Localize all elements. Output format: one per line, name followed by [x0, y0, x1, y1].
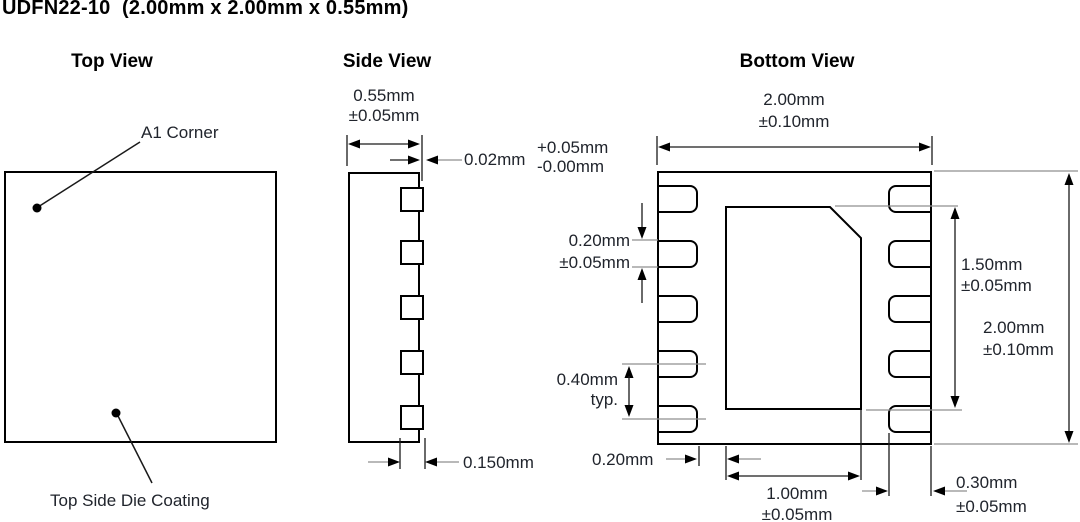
dim-terminal-thickness: 0.150mm	[463, 453, 534, 473]
arrowhead-down-icon	[951, 396, 960, 408]
arrowhead-up-icon	[638, 268, 647, 280]
arrowhead-down-icon	[1065, 431, 1074, 443]
arrowhead-up-icon	[1065, 173, 1074, 185]
arrowhead-left-icon	[348, 140, 360, 149]
arrowhead-right-icon	[685, 455, 697, 464]
dim-terminal-width: 0.20mm ±0.05mm	[538, 230, 630, 274]
arrowhead-right-icon	[919, 143, 931, 152]
arrowhead-left-icon	[727, 455, 739, 464]
a1-corner-label: A1 Corner	[141, 123, 218, 143]
arrowhead-down-icon	[638, 227, 647, 239]
dim-terminal-length: 0.30mm ±0.05mm	[956, 471, 1027, 519]
leader-line-a1	[38, 142, 140, 207]
dim-tolerance: ±0.10mm	[983, 339, 1054, 361]
arrowhead-right-icon	[848, 472, 860, 481]
die-coating-label: Top Side Die Coating	[50, 491, 210, 511]
thermal-pad	[726, 207, 861, 409]
dim-tolerance-minus: -0.00mm	[537, 157, 608, 176]
dim-value: 2.00mm	[734, 89, 854, 111]
dim-tolerance: ±0.05mm	[956, 495, 1027, 519]
arrowhead-left-icon	[933, 487, 945, 496]
dim-terminal-protrusion-tol: +0.05mm -0.00mm	[537, 138, 608, 176]
arrowhead-right-icon	[876, 487, 888, 496]
dim-value: 0.55mm	[334, 86, 434, 106]
arrowhead-right-icon	[408, 156, 420, 165]
dim-tolerance: ±0.10mm	[734, 111, 854, 133]
bottom-view-heading: Bottom View	[707, 51, 887, 73]
dim-body-width: 2.00mm ±0.10mm	[734, 89, 854, 133]
arrowhead-left-icon	[426, 156, 438, 165]
dim-value: 2.00mm	[983, 317, 1054, 339]
package-outline-drawing: UDFN22-10 (2.00mm x 2.00mm x 0.55mm) Top…	[0, 0, 1080, 522]
dim-value: 0.30mm	[956, 471, 1027, 495]
dim-value: 0.40mm	[528, 370, 618, 390]
leader-line-coating	[116, 412, 152, 483]
arrowhead-left-icon	[658, 143, 670, 152]
dim-thermal-pad-width: 1.00mm ±0.05mm	[737, 483, 857, 522]
die-coating-dot	[112, 409, 121, 418]
dim-value: 1.00mm	[737, 483, 857, 504]
dim-package-thickness: 0.55mm ±0.05mm	[334, 86, 434, 126]
dim-tolerance: ±0.05mm	[737, 504, 857, 522]
top-view-heading: Top View	[32, 51, 192, 73]
dim-thermal-pad-length: 1.50mm ±0.05mm	[961, 254, 1032, 296]
arrowhead-left-icon	[727, 472, 739, 481]
a1-corner-dot	[33, 204, 42, 213]
dim-tolerance: ±0.05mm	[961, 275, 1032, 296]
dim-qualifier: typ.	[528, 390, 618, 410]
side-view-heading: Side View	[307, 51, 467, 73]
arrowhead-down-icon	[625, 405, 634, 417]
arrowhead-right-icon	[388, 458, 400, 467]
dim-value: 0.20mm	[538, 230, 630, 252]
dim-tolerance: ±0.05mm	[334, 106, 434, 126]
page-title: UDFN22-10 (2.00mm x 2.00mm x 0.55mm)	[2, 0, 408, 20]
dim-terminal-pitch: 0.40mm typ.	[528, 370, 618, 410]
dim-tolerance-plus: +0.05mm	[537, 138, 608, 157]
dim-terminal-pad-gap: 0.20mm	[592, 450, 653, 470]
dim-body-length: 2.00mm ±0.10mm	[983, 317, 1054, 361]
arrowhead-left-icon	[425, 458, 437, 467]
arrowhead-right-icon	[408, 140, 420, 149]
dim-terminal-protrusion: 0.02mm	[464, 150, 525, 170]
dim-value: 1.50mm	[961, 254, 1032, 275]
arrowhead-up-icon	[951, 207, 960, 219]
dim-tolerance: ±0.05mm	[538, 252, 630, 274]
